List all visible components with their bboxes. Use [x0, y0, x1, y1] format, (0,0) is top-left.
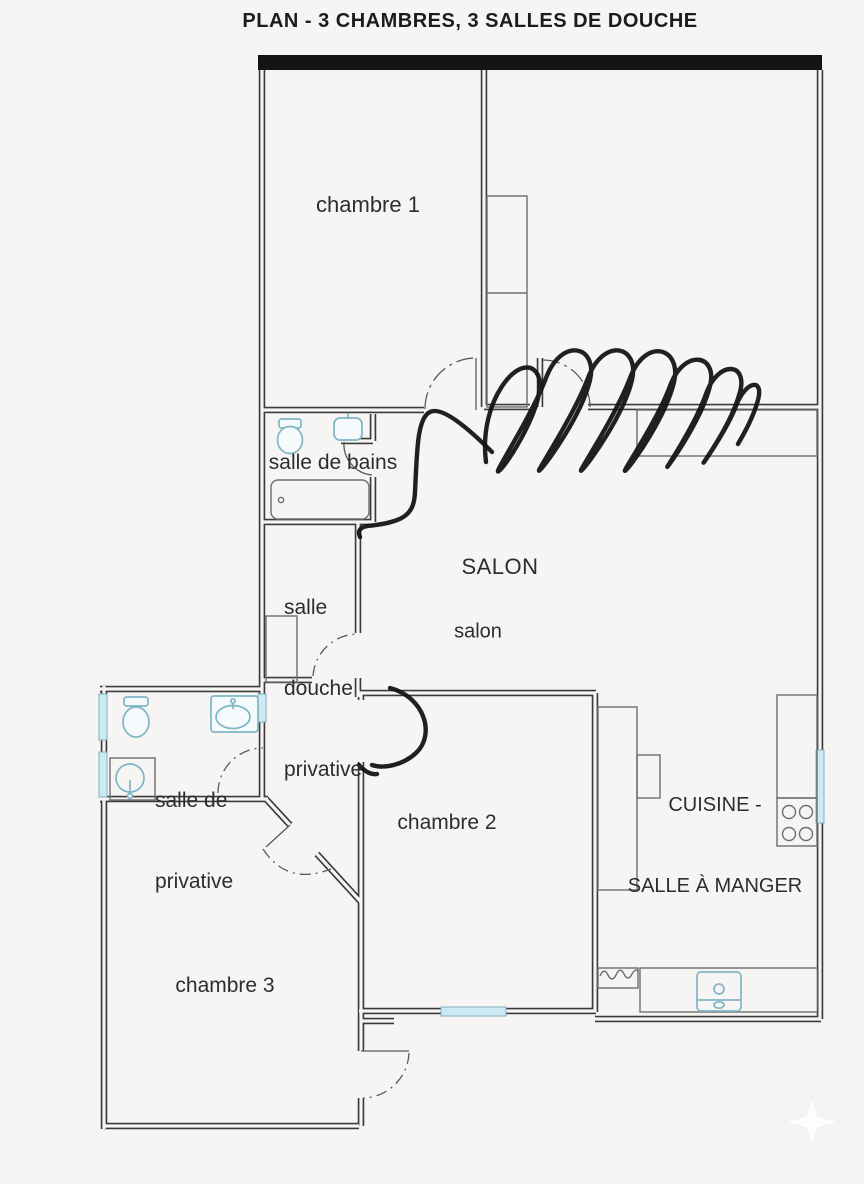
washbasin-icon — [110, 758, 155, 800]
window-bath2-lower — [99, 752, 107, 797]
radiator-icon — [598, 968, 638, 988]
pen-door-arc-annotation — [359, 688, 426, 774]
window-bath2-right — [258, 694, 266, 722]
room-label-salle-douche-privative: salle douche privative — [284, 540, 362, 837]
kitchen-counter-bottom — [640, 968, 818, 1012]
room-label-chambre-1: chambre 1 — [316, 192, 420, 218]
room-label-chambre-2: chambre 2 — [397, 811, 496, 835]
kitchen-sink-icon — [697, 972, 741, 1011]
floorplan-canvas — [0, 0, 864, 1184]
closet-chambre1 — [487, 196, 527, 407]
sink-icon — [334, 413, 362, 440]
top-load-bearing-wall — [258, 55, 822, 70]
room-label-salle-de-bains: salle de bains — [269, 451, 397, 475]
window-chambre2 — [441, 1007, 506, 1016]
pen-annotations — [359, 350, 759, 774]
sink-icon-2 — [211, 696, 258, 732]
toilet-icon-2 — [123, 697, 149, 737]
pen-scribble — [485, 350, 759, 471]
door-arc-chambre1 — [425, 358, 476, 409]
walls — [100, 70, 821, 1129]
room-label-chambre-3: chambre 3 — [175, 974, 274, 998]
counter-salon — [637, 410, 817, 456]
door-arc-entrance — [363, 1053, 409, 1098]
floorplan: PLAN - 3 CHAMBRES, 3 SALLES DE DOUCHE — [0, 0, 864, 1184]
bathtub-icon — [271, 480, 369, 519]
room-label-cuisine: CUISINE - SALLE À MANGER — [628, 738, 803, 954]
room-label-salle-privative: salle de privative — [155, 733, 233, 949]
plan-title: PLAN - 3 CHAMBRES, 3 SALLES DE DOUCHE — [242, 10, 697, 33]
room-label-salon-upper: SALON — [461, 554, 538, 580]
north-arrow-watermark — [783, 1096, 841, 1147]
toilet-icon — [278, 419, 303, 454]
room-label-salon-lower: salon — [454, 621, 502, 644]
window-bath2-upper — [99, 694, 107, 740]
